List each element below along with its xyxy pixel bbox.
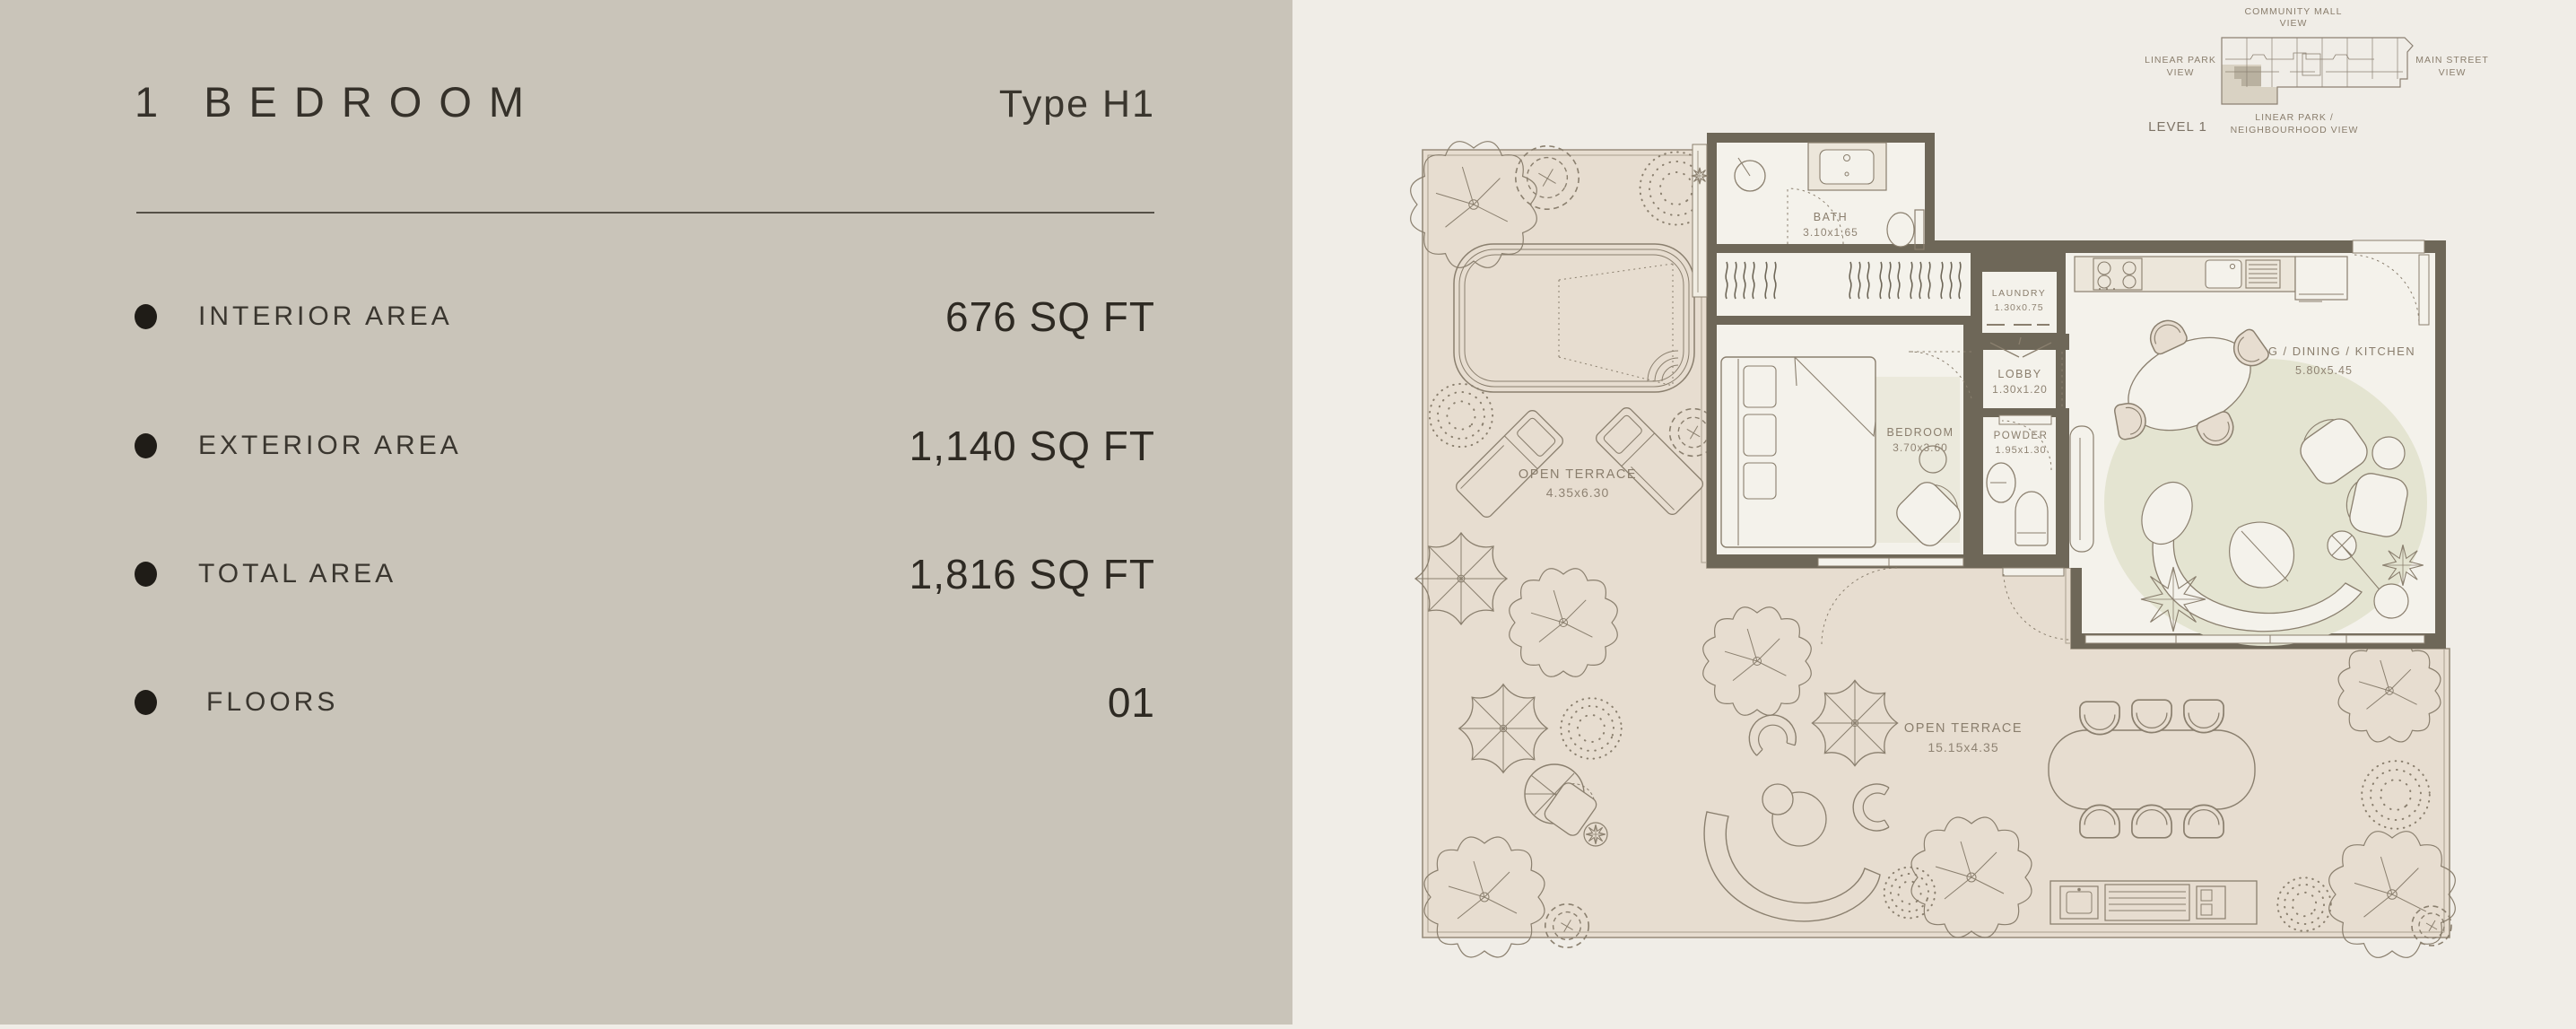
svg-text:15.15x4.35: 15.15x4.35	[1928, 740, 1998, 754]
spec-row-exterior: EXTERIOR AREA 1,140 SQ FT	[135, 421, 1155, 471]
spec-panel: 1 BEDROOM Type H1 INTERIOR AREA 676 SQ F…	[0, 0, 1292, 1025]
svg-text:BATH: BATH	[1814, 211, 1848, 223]
svg-text:5.80x5.45: 5.80x5.45	[2295, 364, 2353, 377]
svg-text:MAIN STREET: MAIN STREET	[2415, 55, 2489, 65]
page-title: 1 BEDROOM	[135, 77, 541, 126]
svg-text:VIEW: VIEW	[2167, 67, 2195, 78]
svg-text:LINEAR PARK: LINEAR PARK	[2145, 55, 2216, 65]
floor-plan-panel: OPEN TERRACE 4.35x6.30	[1292, 0, 2576, 1025]
plan-type-label: Type H1	[999, 83, 1155, 126]
svg-text:3.70x3.60: 3.70x3.60	[1893, 441, 1948, 454]
svg-text:VIEW: VIEW	[2280, 18, 2308, 29]
svg-text:1.95x1.30: 1.95x1.30	[1995, 445, 2046, 456]
spec-label: EXTERIOR AREA	[198, 431, 462, 461]
bullet-icon	[135, 562, 157, 587]
spec-value: 676 SQ FT	[945, 292, 1155, 341]
spec-row-total: TOTAL AREA 1,816 SQ FT	[135, 549, 1155, 599]
level-locator: COMMUNITY MALL VIEW LINEAR PARK VIEW MAI…	[2145, 6, 2489, 135]
outdoor-kitchen	[2050, 881, 2257, 924]
spec-value: 1,816 SQ FT	[909, 550, 1155, 598]
svg-text:OPEN TERRACE: OPEN TERRACE	[1904, 721, 2023, 736]
level-label: LEVEL 1	[2148, 119, 2207, 135]
floor-plan: OPEN TERRACE 4.35x6.30	[1292, 0, 2576, 1025]
svg-text:4.35x6.30: 4.35x6.30	[1546, 485, 1610, 500]
title-row: 1 BEDROOM Type H1	[135, 77, 1155, 126]
svg-text:LAUNDRY: LAUNDRY	[1992, 288, 2047, 299]
spec-value: 1,140 SQ FT	[909, 422, 1155, 470]
floorplan-page: 1 BEDROOM Type H1 INTERIOR AREA 676 SQ F…	[0, 0, 2576, 1025]
bullet-icon	[135, 433, 157, 458]
bullet-icon	[135, 304, 157, 329]
spec-label: INTERIOR AREA	[198, 301, 453, 332]
planter-strip	[1692, 144, 1708, 297]
svg-text:1.30x1.20: 1.30x1.20	[1992, 383, 2048, 396]
svg-text:1.30x0.75: 1.30x0.75	[1994, 302, 2043, 313]
svg-text:BEDROOM: BEDROOM	[1886, 426, 1954, 439]
svg-text:COMMUNITY MALL: COMMUNITY MALL	[2245, 6, 2343, 17]
svg-text:LINEAR PARK /: LINEAR PARK /	[2255, 112, 2334, 123]
spec-label: FLOORS	[206, 687, 338, 718]
spec-label: TOTAL AREA	[198, 559, 396, 589]
svg-text:3.10x1.65: 3.10x1.65	[1803, 226, 1858, 239]
svg-text:OPEN TERRACE: OPEN TERRACE	[1519, 467, 1637, 482]
svg-text:NEIGHBOURHOOD VIEW: NEIGHBOURHOOD VIEW	[2231, 125, 2359, 135]
bullet-icon	[135, 690, 157, 715]
svg-text:VIEW: VIEW	[2439, 67, 2467, 78]
svg-text:LOBBY: LOBBY	[1997, 368, 2041, 380]
spec-row-floors: FLOORS 01	[135, 677, 1155, 728]
divider-rule	[136, 212, 1154, 214]
spec-row-interior: INTERIOR AREA 676 SQ FT	[135, 292, 1155, 342]
svg-text:POWDER: POWDER	[1994, 431, 2049, 441]
spec-value: 01	[1108, 678, 1155, 727]
